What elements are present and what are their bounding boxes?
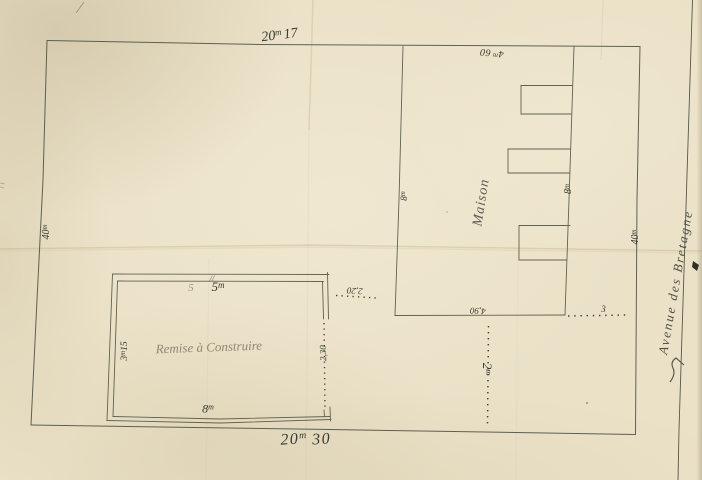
svg-text:4,90: 4,90 <box>469 306 486 317</box>
svg-text:2,30: 2,30 <box>318 345 329 362</box>
svg-text:20m17: 20m17 <box>260 25 299 45</box>
svg-text:Remise à Construire: Remise à Construire <box>154 338 262 357</box>
svg-text:Maison: Maison <box>470 178 492 229</box>
svg-text:5: 5 <box>188 282 194 294</box>
svg-text://: // <box>209 274 215 283</box>
svg-text:2,20: 2,20 <box>346 285 363 296</box>
svg-text:8m: 8m <box>563 184 574 194</box>
svg-text:8m: 8m <box>399 191 409 201</box>
svg-text:3: 3 <box>600 304 606 314</box>
svg-text:4m60: 4m60 <box>479 46 504 60</box>
svg-text:40m: 40m <box>41 224 52 239</box>
svg-text:3m15: 3m15 <box>119 341 130 362</box>
svg-text:2m: 2m <box>480 363 495 376</box>
svg-text:8m: 8m <box>202 402 214 416</box>
svg-text:Avenue des Bretagne: Avenue des Bretagne <box>655 209 695 357</box>
svg-text:40m: 40m <box>630 229 641 244</box>
